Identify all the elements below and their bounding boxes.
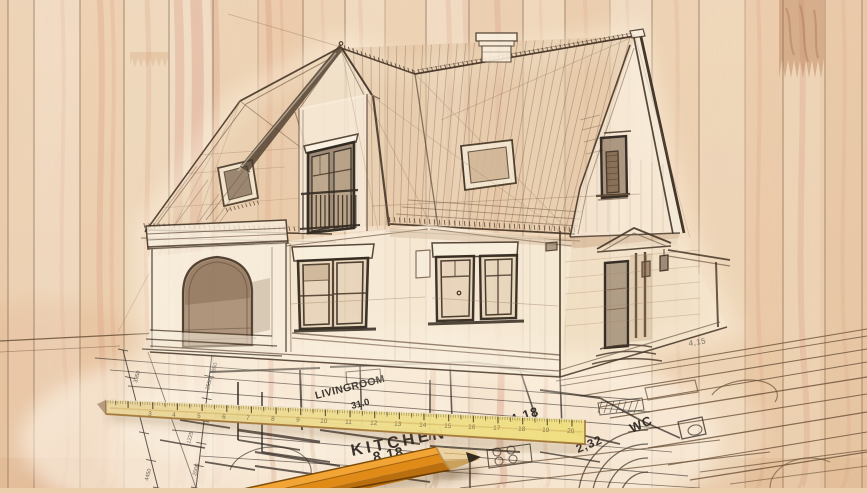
svg-text:14: 14 — [419, 422, 427, 430]
svg-text:15: 15 — [444, 423, 452, 431]
svg-text:16: 16 — [468, 424, 476, 432]
